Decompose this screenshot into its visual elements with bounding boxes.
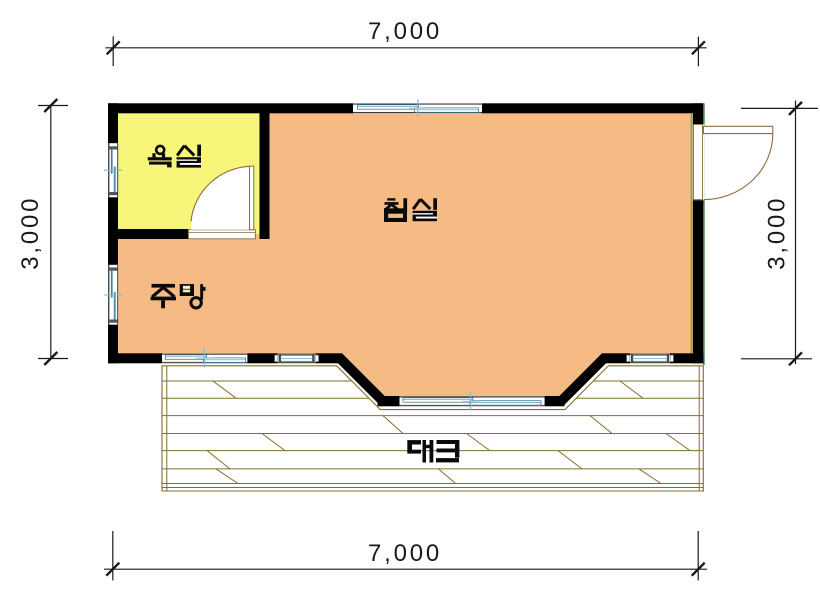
svg-text:3,000: 3,000 bbox=[17, 196, 44, 270]
svg-text:7,000: 7,000 bbox=[368, 540, 442, 567]
svg-text:3,000: 3,000 bbox=[764, 196, 791, 270]
svg-text:7,000: 7,000 bbox=[368, 18, 442, 45]
